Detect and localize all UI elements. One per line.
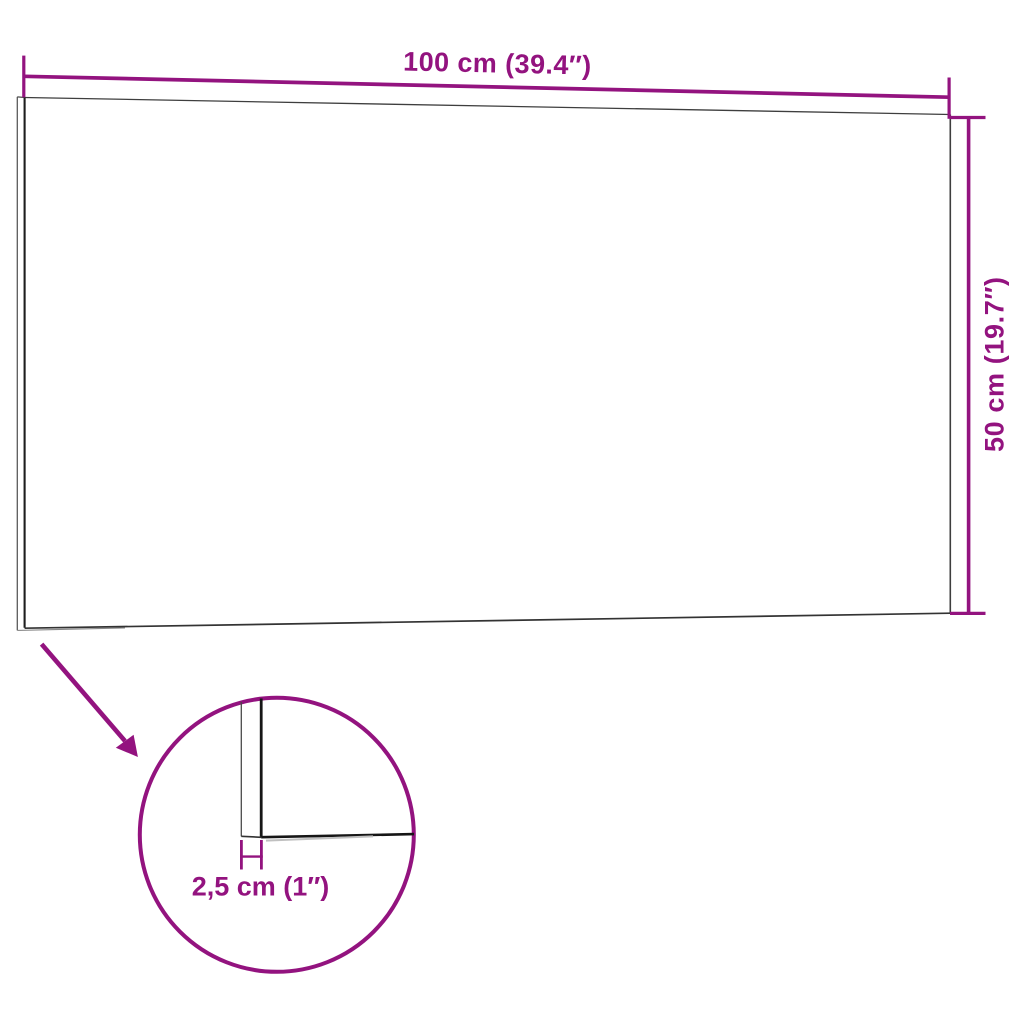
svg-text:2,5 cm (1″): 2,5 cm (1″) [192, 871, 330, 901]
svg-text:50 cm (19.7″): 50 cm (19.7″) [979, 277, 1009, 452]
svg-text:100 cm (39.4″): 100 cm (39.4″) [403, 46, 592, 80]
